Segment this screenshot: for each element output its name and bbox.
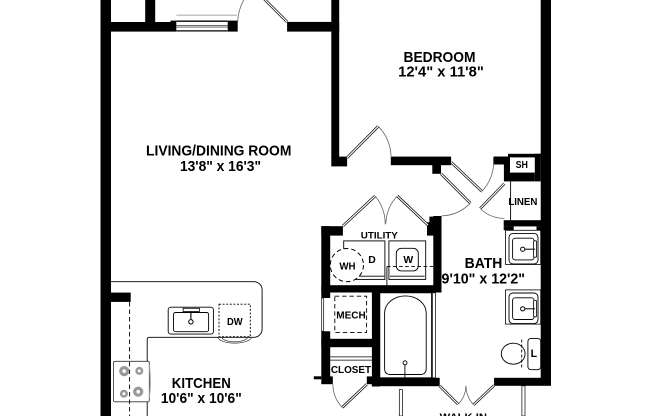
svg-text:13'8" x 16'3": 13'8" x 16'3" — [180, 159, 261, 175]
svg-text:WALK IN: WALK IN — [440, 412, 487, 416]
svg-text:MECH: MECH — [336, 310, 365, 321]
svg-text:WH: WH — [339, 261, 355, 272]
svg-text:BATH: BATH — [465, 256, 503, 272]
svg-text:DW: DW — [227, 317, 243, 328]
svg-text:W: W — [403, 255, 413, 266]
svg-text:9'10" x 12'2": 9'10" x 12'2" — [442, 271, 526, 287]
svg-text:SH: SH — [516, 160, 528, 171]
svg-text:12'4" x 11'8": 12'4" x 11'8" — [398, 64, 484, 80]
svg-text:LINEN: LINEN — [508, 197, 537, 208]
svg-text:D: D — [368, 255, 376, 266]
svg-text:CLOSET: CLOSET — [331, 365, 372, 376]
svg-text:LIVING/DINING ROOM: LIVING/DINING ROOM — [146, 144, 291, 160]
svg-text:10'6" x 10'6": 10'6" x 10'6" — [161, 391, 242, 407]
svg-text:BEDROOM: BEDROOM — [404, 50, 476, 66]
svg-text:KITCHEN: KITCHEN — [172, 376, 231, 392]
svg-text:UTILITY: UTILITY — [361, 230, 399, 240]
svg-text:L: L — [531, 348, 538, 360]
